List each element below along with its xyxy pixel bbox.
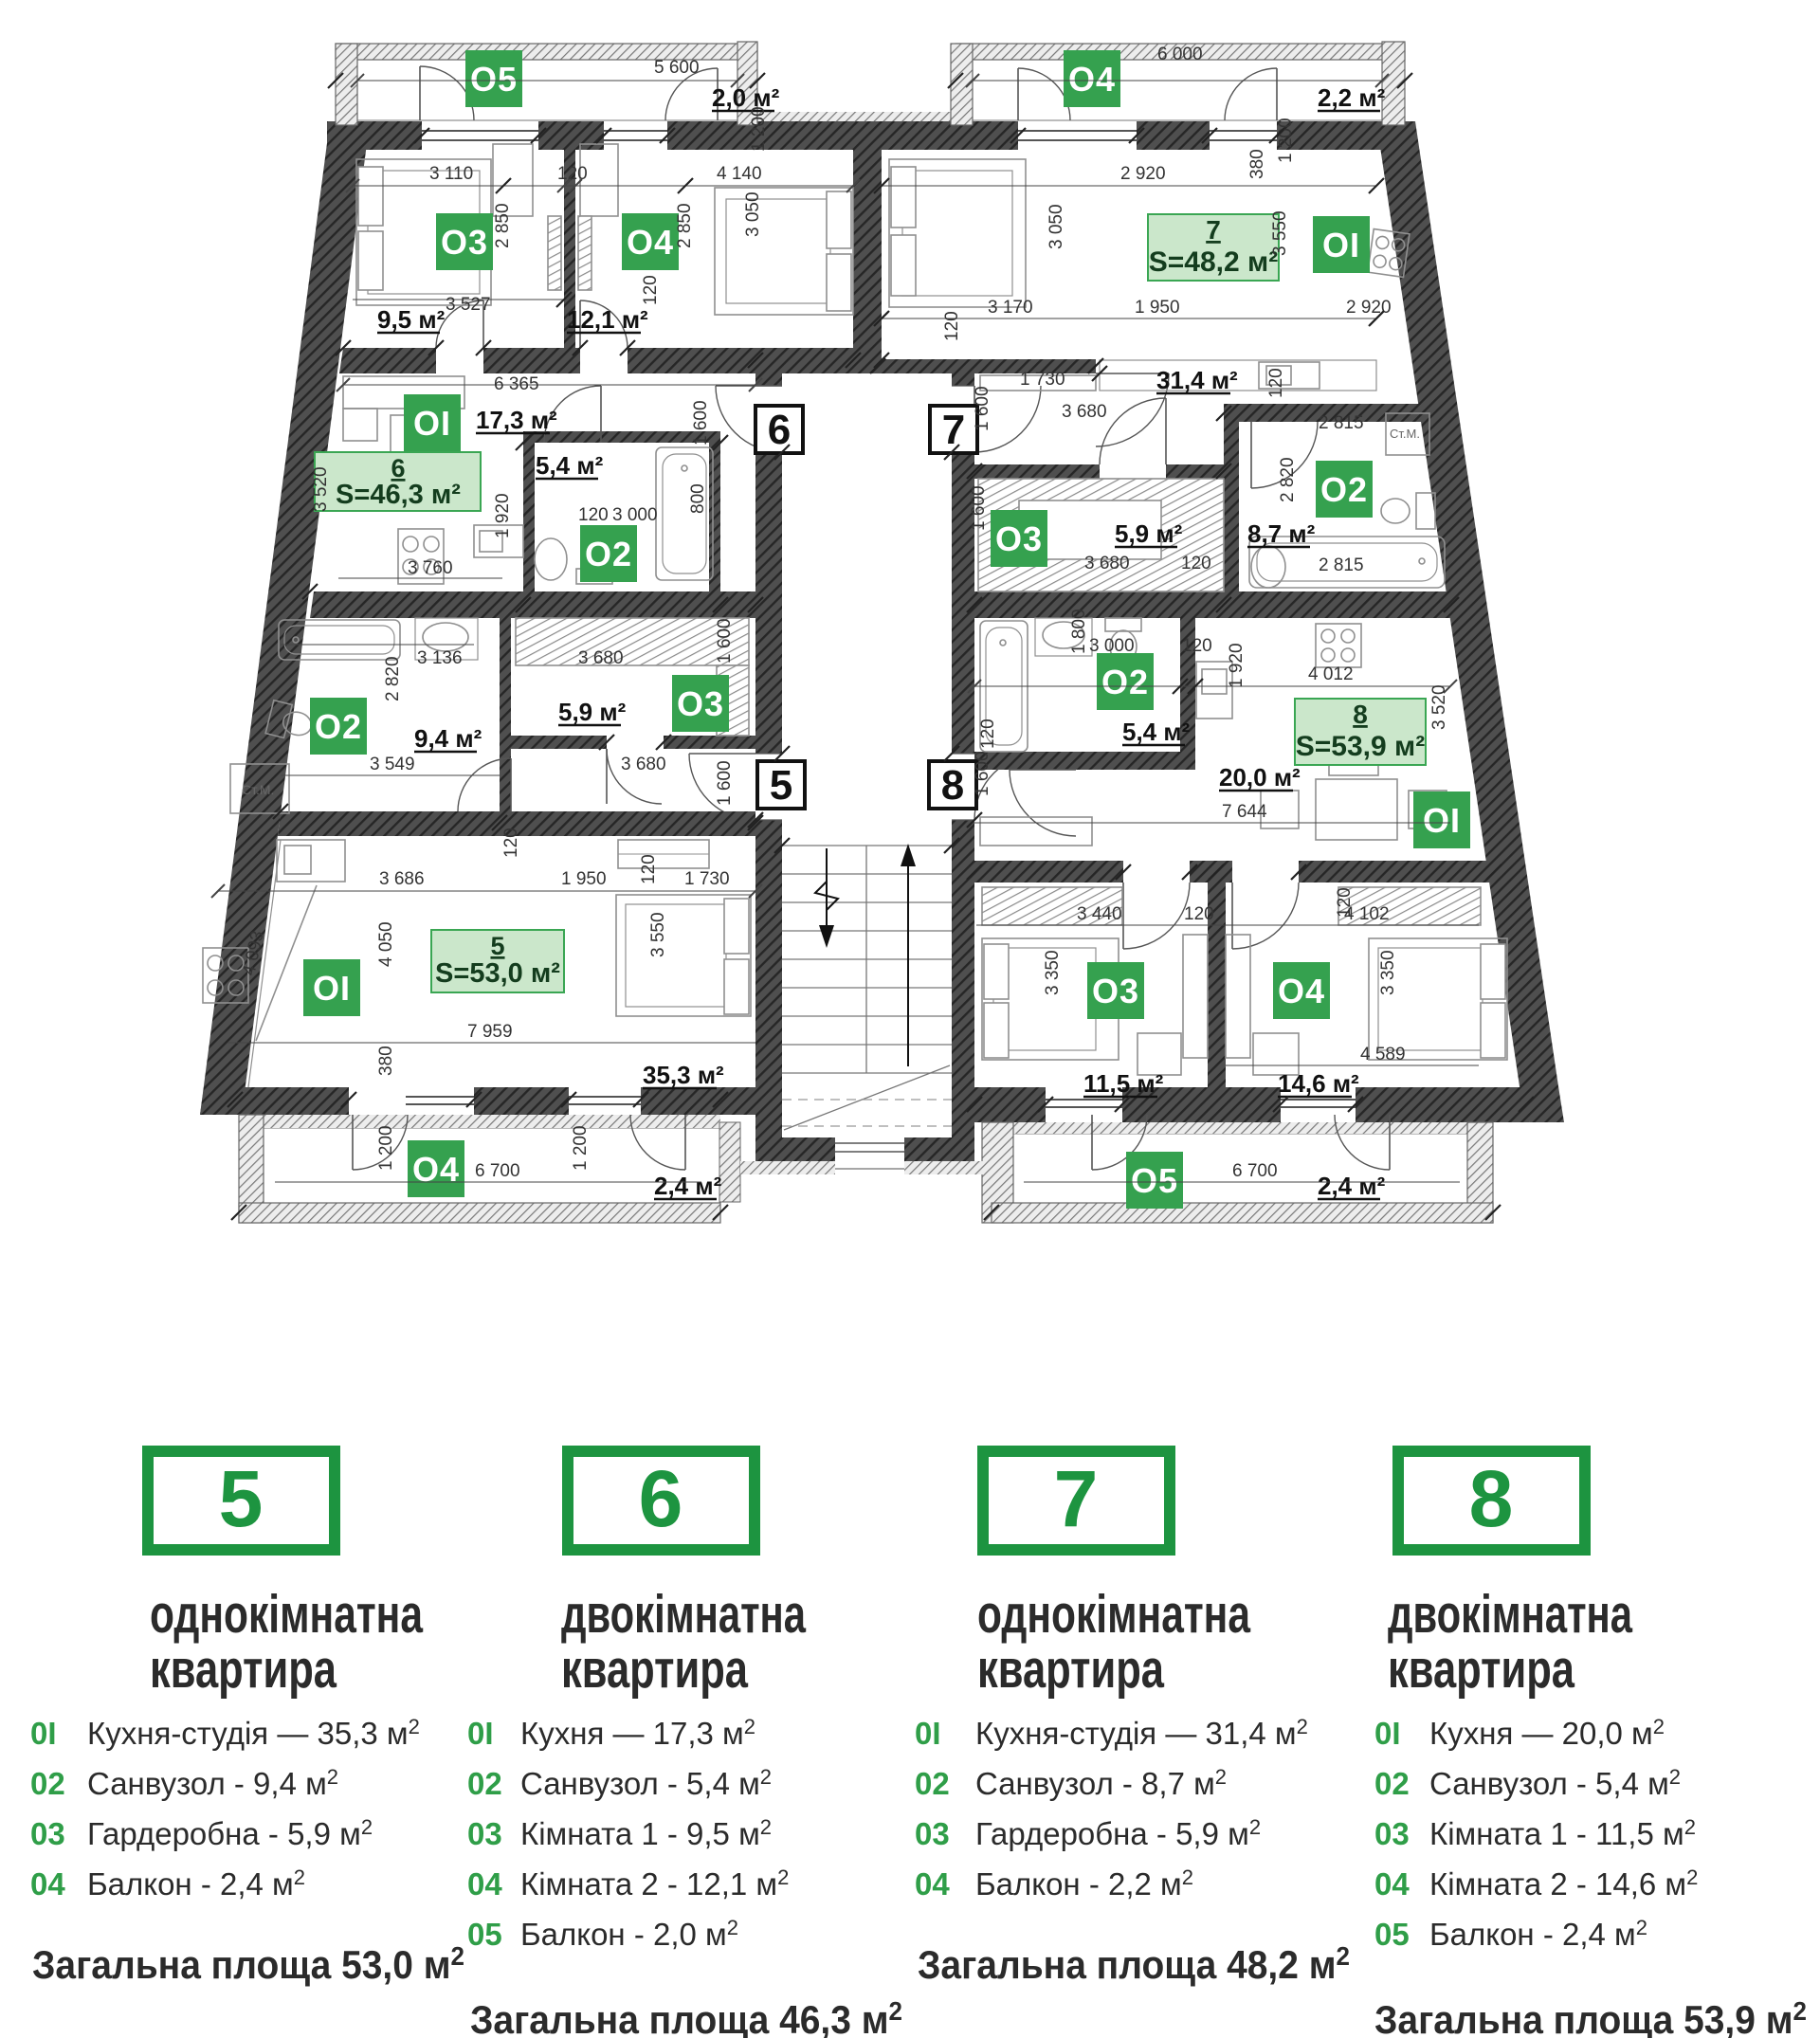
svg-text:3 050: 3 050 [1046,204,1066,249]
svg-text:Гардеробна - 5,9 м2: Гардеробна - 5,9 м2 [87,1815,373,1851]
svg-text:7 959: 7 959 [467,1022,513,1042]
svg-text:OI: OI [1322,226,1360,264]
svg-text:02: 02 [467,1766,502,1801]
svg-text:2 815: 2 815 [1319,413,1364,433]
svg-text:Загальна площа 53,0 м2: Загальна площа 53,0 м2 [32,1941,464,1987]
svg-text:3 350: 3 350 [1378,950,1398,995]
svg-text:3 680: 3 680 [621,755,666,774]
svg-text:7: 7 [1206,215,1221,245]
svg-text:квартира: квартира [561,1639,749,1700]
svg-text:двокімнатна: двокімнатна [1388,1584,1633,1645]
svg-text:3 000: 3 000 [1089,636,1135,656]
svg-text:0I: 0I [1374,1716,1401,1751]
svg-text:квартира: квартира [150,1639,337,1700]
svg-text:Кімната 1 - 11,5 м2: Кімната 1 - 11,5 м2 [1429,1815,1696,1851]
svg-text:1 200: 1 200 [1276,118,1296,163]
svg-text:120: 120 [557,164,588,184]
svg-text:2 920: 2 920 [1346,298,1392,318]
svg-text:4 050: 4 050 [376,921,396,967]
svg-text:1 200: 1 200 [571,1125,591,1171]
svg-text:O4: O4 [1278,972,1325,1010]
svg-text:5: 5 [770,762,792,809]
svg-text:1 600: 1 600 [973,386,992,431]
svg-text:6: 6 [639,1454,683,1543]
svg-text:2 820: 2 820 [1278,457,1298,502]
svg-text:02: 02 [30,1766,65,1801]
svg-text:Кімната 2 - 12,1 м2: Кімната 2 - 12,1 м2 [520,1865,789,1902]
svg-text:1 600: 1 600 [973,751,992,796]
svg-text:OI: OI [1423,801,1461,840]
svg-text:31,4 м²: 31,4 м² [1156,366,1238,394]
svg-text:Санвузол - 8,7 м2: Санвузол - 8,7 м2 [975,1765,1227,1801]
svg-text:2,0 м²: 2,0 м² [712,83,780,112]
svg-text:0I: 0I [30,1716,57,1751]
svg-text:O5: O5 [1131,1161,1178,1200]
svg-text:O4: O4 [412,1150,460,1189]
svg-text:OI: OI [313,969,351,1008]
svg-text:05: 05 [1374,1917,1410,1952]
svg-text:120: 120 [978,719,998,749]
svg-text:120: 120 [1181,554,1211,573]
svg-text:Ст.М.: Ст.М. [1390,427,1420,441]
svg-text:6 365: 6 365 [494,374,539,394]
svg-text:O4: O4 [627,223,674,262]
svg-text:5,4 м²: 5,4 м² [1122,718,1191,746]
svg-text:Балкон - 2,2 м2: Балкон - 2,2 м2 [975,1865,1193,1902]
svg-text:11,5 м²: 11,5 м² [1083,1069,1164,1098]
svg-text:S=53,9 м²: S=53,9 м² [1296,731,1425,762]
svg-text:120: 120 [1182,636,1212,656]
svg-text:120: 120 [641,275,661,305]
svg-text:0I: 0I [467,1716,494,1751]
svg-text:5 600: 5 600 [654,58,700,78]
svg-text:03: 03 [467,1816,502,1851]
svg-text:35,3 м²: 35,3 м² [643,1061,724,1089]
svg-text:120: 120 [639,854,659,884]
svg-text:3 680: 3 680 [1062,402,1107,422]
svg-text:2 850: 2 850 [675,203,695,248]
svg-text:Санвузол - 5,4 м2: Санвузол - 5,4 м2 [1429,1765,1681,1801]
svg-text:3 350: 3 350 [1043,950,1063,995]
svg-text:6 000: 6 000 [1157,45,1203,64]
svg-text:9,4 м²: 9,4 м² [414,724,482,753]
svg-text:7: 7 [942,407,965,453]
svg-text:04: 04 [30,1866,65,1902]
svg-text:03: 03 [30,1816,65,1851]
svg-text:120: 120 [578,505,609,525]
svg-text:8: 8 [1353,700,1368,729]
svg-text:однокімнатна: однокімнатна [150,1584,424,1645]
svg-text:3 549: 3 549 [370,755,415,774]
svg-text:2,2 м²: 2,2 м² [1318,83,1386,112]
svg-text:S=48,2 м²: S=48,2 м² [1149,246,1278,278]
svg-text:1 600: 1 600 [715,618,735,664]
svg-text:3 680: 3 680 [1084,554,1130,573]
svg-text:4 589: 4 589 [1360,1045,1406,1064]
svg-text:14,6 м²: 14,6 м² [1278,1069,1359,1098]
svg-text:Загальна площа 46,3 м2: Загальна площа 46,3 м2 [470,1996,902,2038]
svg-text:04: 04 [915,1866,950,1902]
svg-text:5,9 м²: 5,9 м² [558,698,627,726]
svg-text:Балкон - 2,4 м2: Балкон - 2,4 м2 [87,1865,305,1902]
svg-text:1 950: 1 950 [561,869,607,889]
svg-text:12,1 м²: 12,1 м² [567,305,648,334]
svg-text:3 136: 3 136 [417,648,463,668]
svg-text:3 760: 3 760 [408,558,453,578]
svg-text:O2: O2 [1320,470,1368,509]
svg-text:5: 5 [219,1454,264,1543]
svg-text:380: 380 [376,1046,396,1076]
svg-text:800: 800 [688,483,708,514]
svg-text:O4: O4 [1068,60,1116,99]
svg-text:Загальна площа 48,2 м2: Загальна площа 48,2 м2 [918,1941,1350,1987]
svg-text:1 200: 1 200 [749,106,769,152]
svg-text:Кухня — 17,3 м2: Кухня — 17,3 м2 [520,1715,755,1751]
svg-text:1 600: 1 600 [691,400,711,446]
svg-text:O2: O2 [585,535,632,573]
svg-text:квартира: квартира [977,1639,1165,1700]
svg-text:0I: 0I [915,1716,941,1751]
svg-text:3 050: 3 050 [743,191,763,237]
svg-text:O5: O5 [470,60,518,99]
svg-text:02: 02 [915,1766,950,1801]
svg-text:Кімната 1 - 9,5 м2: Кімната 1 - 9,5 м2 [520,1815,772,1851]
svg-text:S=53,0 м²: S=53,0 м² [435,958,560,989]
svg-text:6: 6 [391,454,405,482]
svg-text:3 550: 3 550 [1270,210,1290,256]
svg-text:5,4 м²: 5,4 м² [536,451,604,480]
svg-text:04: 04 [1374,1866,1410,1902]
svg-text:02: 02 [1374,1766,1410,1801]
svg-text:120: 120 [1184,904,1214,924]
svg-text:Гардеробна - 5,9 м2: Гардеробна - 5,9 м2 [975,1815,1261,1851]
svg-text:03: 03 [1374,1816,1410,1851]
svg-text:120: 120 [501,828,521,858]
svg-text:2,4 м²: 2,4 м² [654,1172,722,1200]
svg-text:3 520: 3 520 [1429,684,1449,730]
svg-text:1 600: 1 600 [715,760,735,806]
svg-text:2 815: 2 815 [1319,555,1364,575]
svg-text:3 686: 3 686 [379,869,425,889]
svg-text:квартира: квартира [1388,1639,1575,1700]
svg-text:2,4 м²: 2,4 м² [1318,1172,1386,1200]
svg-text:3 527: 3 527 [446,295,491,315]
svg-text:3 000: 3 000 [612,505,658,525]
svg-text:7: 7 [1054,1454,1099,1543]
svg-text:7 644: 7 644 [1222,802,1267,822]
svg-text:4 140: 4 140 [717,164,762,184]
svg-text:6 700: 6 700 [1232,1161,1278,1181]
svg-text:O2: O2 [1101,663,1149,701]
svg-text:03: 03 [915,1816,950,1851]
svg-text:20,0 м²: 20,0 м² [1219,763,1301,792]
svg-text:1 800: 1 800 [1069,609,1089,654]
svg-text:O3: O3 [995,519,1043,558]
svg-text:1 730: 1 730 [1020,370,1065,390]
svg-text:1 920: 1 920 [1227,643,1247,688]
svg-text:1 600: 1 600 [969,485,989,531]
svg-text:Ст.М.: Ст.М. [242,782,274,797]
svg-text:17,3 м²: 17,3 м² [476,406,557,434]
svg-text:O2: O2 [315,707,362,746]
svg-text:3 170: 3 170 [988,298,1033,318]
svg-text:O3: O3 [441,223,488,262]
svg-text:120: 120 [1266,368,1286,398]
svg-text:3 110: 3 110 [429,164,473,184]
svg-text:Балкон - 2,4 м2: Балкон - 2,4 м2 [1429,1916,1647,1952]
svg-text:Загальна площа 53,9 м2: Загальна площа 53,9 м2 [1374,1996,1807,2038]
svg-text:8: 8 [941,762,964,809]
svg-text:S=46,3 м²: S=46,3 м² [336,480,461,510]
svg-text:5,9 м²: 5,9 м² [1115,519,1183,548]
svg-text:4 012: 4 012 [1308,664,1354,684]
svg-text:120: 120 [1335,887,1355,918]
svg-text:2 920: 2 920 [1120,164,1166,184]
svg-text:2 850: 2 850 [493,203,513,248]
svg-text:8,7 м²: 8,7 м² [1247,519,1316,548]
svg-text:Кухня-студія — 35,3 м2: Кухня-студія — 35,3 м2 [87,1715,420,1751]
svg-text:Санвузол - 9,4 м2: Санвузол - 9,4 м2 [87,1765,338,1801]
svg-text:двокімнатна: двокімнатна [561,1584,807,1645]
svg-text:O3: O3 [1092,972,1139,1010]
svg-text:120: 120 [942,311,962,341]
svg-text:Балкон - 2,0 м2: Балкон - 2,0 м2 [520,1916,738,1952]
svg-text:04: 04 [467,1866,502,1902]
svg-text:Кухня — 20,0 м2: Кухня — 20,0 м2 [1429,1715,1665,1751]
svg-text:3 550: 3 550 [648,912,668,957]
svg-text:05: 05 [467,1917,502,1952]
svg-text:1 950: 1 950 [1135,298,1180,318]
svg-text:Санвузол - 5,4 м2: Санвузол - 5,4 м2 [520,1765,772,1801]
svg-text:Кухня-студія — 31,4 м2: Кухня-студія — 31,4 м2 [975,1715,1308,1751]
svg-text:1 200: 1 200 [376,1125,396,1171]
svg-text:3 440: 3 440 [1077,904,1122,924]
svg-text:Кімната 2 - 14,6 м2: Кімната 2 - 14,6 м2 [1429,1865,1698,1902]
svg-text:6 700: 6 700 [475,1161,520,1181]
svg-text:3 520: 3 520 [311,466,331,512]
svg-text:1 920: 1 920 [493,493,513,538]
svg-text:O3: O3 [677,684,724,723]
svg-text:380: 380 [1247,149,1267,179]
svg-text:9,5 м²: 9,5 м² [377,305,446,334]
svg-text:OI: OI [413,404,451,443]
svg-text:1 730: 1 730 [684,869,730,889]
svg-text:8: 8 [1469,1454,1514,1543]
svg-text:однокімнатна: однокімнатна [977,1584,1251,1645]
svg-text:5: 5 [490,932,504,960]
svg-text:2 820: 2 820 [383,656,403,701]
svg-text:3 680: 3 680 [578,648,624,668]
